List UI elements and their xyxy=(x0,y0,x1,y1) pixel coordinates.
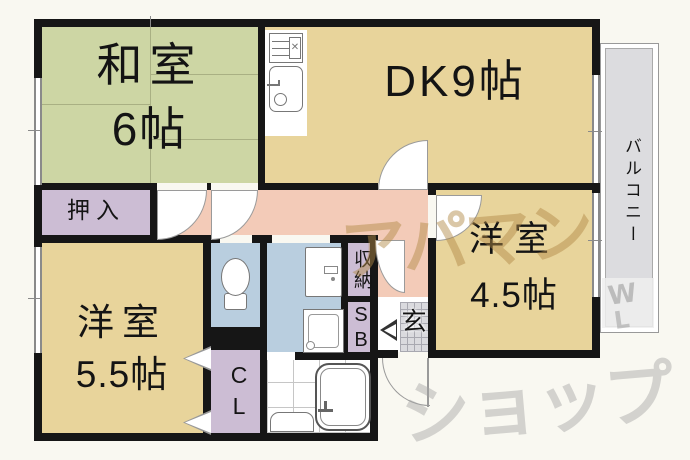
sb-label: SB xyxy=(347,304,371,350)
wall xyxy=(34,183,157,190)
washbasin-icon xyxy=(305,247,342,297)
genkan-label: 玄 xyxy=(398,310,430,335)
threshold xyxy=(267,352,295,360)
wall xyxy=(592,19,600,75)
youshitsu45-label: 洋室 xyxy=(436,222,592,257)
bathtub-icon xyxy=(315,363,371,431)
wall xyxy=(428,350,592,358)
wall xyxy=(34,19,600,27)
washitsu-size-label: 6帖 xyxy=(41,106,258,152)
cl-label: CL xyxy=(222,356,250,430)
window xyxy=(592,75,600,183)
wall xyxy=(34,235,220,243)
wall xyxy=(341,296,378,302)
washitsu-label: 和室 xyxy=(41,42,258,88)
bath-faucet-icon xyxy=(318,409,333,412)
wall xyxy=(258,183,378,190)
balcony-label: バルコニー xyxy=(618,112,640,272)
wall xyxy=(211,327,260,350)
front-door-leaf xyxy=(427,358,429,407)
wall xyxy=(592,183,600,193)
wall xyxy=(428,183,592,190)
washing-machine-pan-icon xyxy=(303,309,344,353)
dimension-tick xyxy=(28,130,42,131)
youshitsu45-size-label: 4.5帖 xyxy=(430,278,598,313)
kitchen-sink-icon xyxy=(269,66,303,112)
wall xyxy=(428,190,436,195)
shuno-label: 収納 xyxy=(347,246,371,294)
toilet-icon xyxy=(221,258,250,296)
floorplan: ✕ 和室 6帖 DK9帖 洋室 5.5帖 洋室 4.5帖 押入 CL 収納 SB… xyxy=(0,0,690,460)
dk-label: DK9帖 xyxy=(330,60,580,104)
dimension-tick xyxy=(150,16,151,27)
youshitsu55-size-label: 5.5帖 xyxy=(22,356,222,393)
bath-counter xyxy=(270,412,314,432)
wall xyxy=(207,183,211,190)
stove-icon: ✕ xyxy=(269,33,303,63)
dimension-tick xyxy=(588,131,602,132)
wall xyxy=(258,19,265,190)
youshitsu55-label: 洋室 xyxy=(32,304,212,341)
front-door-arc xyxy=(382,358,430,406)
oshiire-label: 押入 xyxy=(42,199,150,222)
dimension-tick xyxy=(28,298,42,299)
wall xyxy=(260,235,267,441)
wall xyxy=(370,352,378,441)
watermark-patch xyxy=(602,278,654,328)
